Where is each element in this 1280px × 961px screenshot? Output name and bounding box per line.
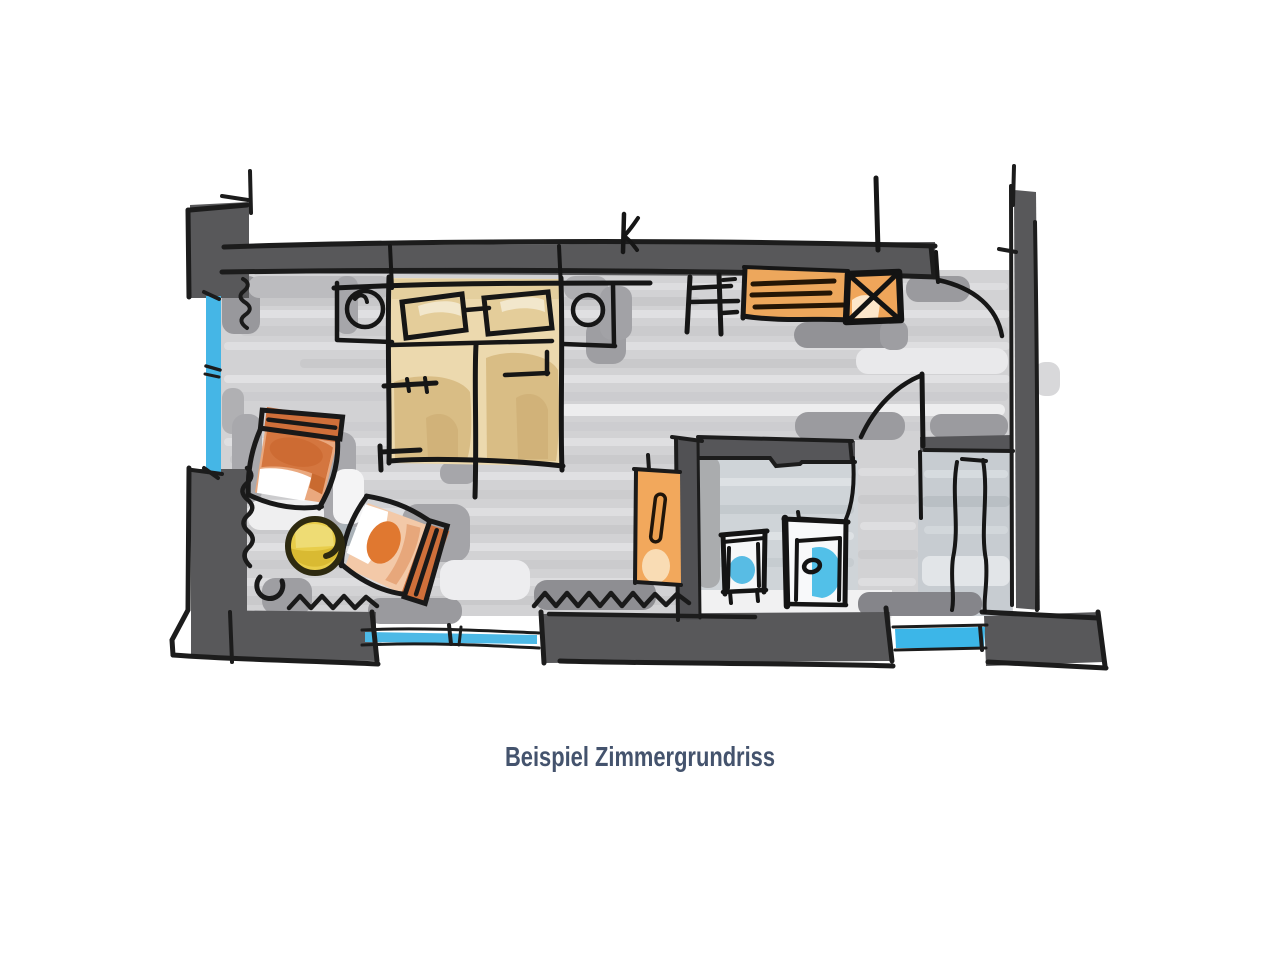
svg-text:Beispiel Zimmergrundriss: Beispiel Zimmergrundriss bbox=[505, 741, 775, 772]
